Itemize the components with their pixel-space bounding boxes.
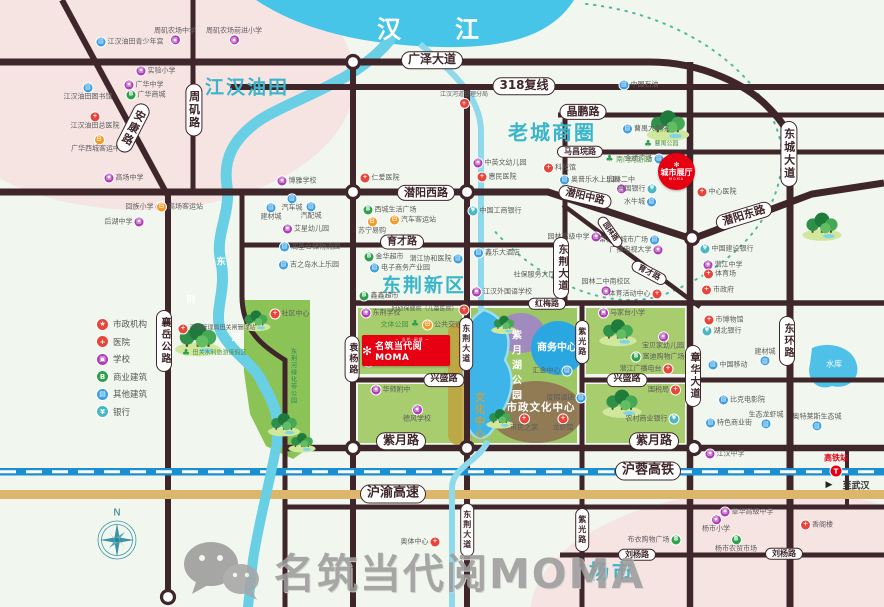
poi-label: 妇幼保健院（儿童医院） <box>391 307 457 313</box>
poi-label: 章华高级中学 <box>732 508 774 515</box>
oth-icon: ▤ <box>813 422 822 431</box>
poi-marker: ▣中英文幼儿园 <box>474 159 527 168</box>
poi-marker: +市民之家 <box>510 414 538 431</box>
sch-icon: ▣ <box>105 174 114 183</box>
road-label: 紫月路 <box>376 432 426 450</box>
oth-icon: ▤ <box>454 255 463 264</box>
road-label: 马昌垸路 <box>557 146 603 158</box>
poi-marker: +龙虾馆 <box>553 414 574 431</box>
legend-item: ¥银行 <box>97 406 147 418</box>
biz-icon: B <box>365 253 374 262</box>
poi-label: 园林二中南校区 <box>582 278 631 285</box>
sch-icon: ▣ <box>283 225 292 234</box>
poi-label: 广华商城 <box>138 91 166 98</box>
biz-icon: B <box>732 535 741 544</box>
compass-north-label: N <box>113 508 120 519</box>
project-logo-box: ✻ ─ 当代·阅境 ─ 名筑当代阅MOMA <box>362 335 450 366</box>
poi-marker: ▣后湖中学 <box>105 218 144 227</box>
poi-label: 艾星幼儿园 <box>294 225 329 232</box>
hosp-icon: + <box>702 286 711 295</box>
poi-marker: ▤江汉油田图书馆 <box>64 83 113 100</box>
poi-marker: ▤汇金中心 <box>533 367 572 376</box>
poi-marker: ¥中国工商银行 <box>469 207 522 216</box>
bank-icon: ¥ <box>703 327 712 336</box>
poi-label: 社区中心 <box>282 310 310 317</box>
poi-label: 河道管理局田关闸管理站 <box>189 326 255 332</box>
oth-icon: ▤ <box>97 389 108 400</box>
sch-icon: ▣ <box>171 36 180 45</box>
poi-label: 汽配城 <box>301 212 322 219</box>
road-label: 兴盛路 <box>423 373 464 387</box>
to-wuhan-label: 至武汉 <box>842 479 869 492</box>
brand-watermark: 名筑当代阅MOMA <box>178 538 645 602</box>
poi-marker: +中心医院 <box>698 188 737 197</box>
bus-icon: ⊟ <box>390 216 399 225</box>
poi-marker: ¥湖北银行 <box>703 327 742 336</box>
poi-label: 鑫乐大酒店 <box>485 249 520 256</box>
poi-label: 体育场 <box>715 270 736 277</box>
poi-label: 田关水利旅游度假区 <box>192 351 246 357</box>
biz-icon: B <box>360 292 369 301</box>
area-label: 东 <box>216 255 225 268</box>
legend-label: 市政机构 <box>113 318 147 330</box>
location-map: 广泽大道318复线晶鹏路马昌垸路潜阳西路潜阳中路潜阳东路育才路园林路育才路红梅路… <box>0 0 884 607</box>
poi-label: 特色商业街 <box>717 419 752 426</box>
poi-label: 市博物馆 <box>716 316 744 323</box>
oth-icon: ▤ <box>97 38 106 47</box>
sch-icon: ▣ <box>278 177 287 186</box>
poi-marker: ▣周矶农场前进小学 <box>206 27 262 44</box>
city-exhibit-badge: ✻ 城市展厅 MOMA <box>658 153 695 190</box>
poi-marker: ▤汽车城 <box>282 194 303 211</box>
oth-icon: ▤ <box>307 202 316 211</box>
poi-marker: +香阁楼 <box>801 521 833 530</box>
poi-marker: +江汉河道管理分局 <box>440 92 488 108</box>
poi-marker: B鑫鑫超市 <box>360 292 399 301</box>
hosp-icon: + <box>544 164 553 173</box>
legend-item: ▣学校 <box>97 353 147 365</box>
legend-label: 学校 <box>113 353 130 365</box>
oth-icon: ▤ <box>719 396 728 405</box>
road-label: 东环路 <box>779 316 795 366</box>
biz-icon: B <box>364 206 373 215</box>
bus-icon: ⊟ <box>423 321 432 330</box>
sch-icon: ▣ <box>230 36 239 45</box>
park-icon: ♣ <box>411 321 420 330</box>
poi-marker: ▣德风学校 <box>403 405 431 422</box>
hosp-icon: + <box>698 188 707 197</box>
sch-icon: ▣ <box>659 332 668 341</box>
poi-marker: ¥中国建设银行 <box>701 245 754 254</box>
bank-icon: ¥ <box>670 415 679 424</box>
poi-label: 吉之岛水上乐园 <box>290 261 339 268</box>
poi-marker: ▤中国移动 <box>709 361 748 370</box>
poi-marker: ▤润基仓储物流园 <box>280 243 340 252</box>
poi-label: 马家台小学 <box>610 309 645 316</box>
oth-icon: ▤ <box>563 367 572 376</box>
poi-marker: +市政府 <box>702 286 734 295</box>
sch-icon: ▣ <box>135 218 144 227</box>
poi-marker: ▤生态龙虾城 <box>749 411 784 428</box>
sch-icon: ▣ <box>137 67 146 76</box>
poi-label: 宝贝家幼儿园 <box>642 342 684 349</box>
project-logo-title: 名筑当代阅MOMA <box>375 342 450 364</box>
hosp-icon: + <box>705 316 714 325</box>
area-label: 紫月湖公园 <box>508 330 523 405</box>
sch-icon: ▣ <box>474 159 483 168</box>
oth-icon: ▤ <box>706 419 715 428</box>
legend-label: 银行 <box>113 406 130 418</box>
bank-icon: ¥ <box>701 245 710 254</box>
hosp-icon: + <box>704 270 713 279</box>
poi-label: 江汉河道管理分局 <box>440 92 488 98</box>
biz-icon: B <box>127 91 136 100</box>
poi-label: 回族小学 <box>126 203 154 210</box>
poi-label: 潜江协和医院 <box>410 255 452 262</box>
park-icon: ♣ <box>643 141 652 150</box>
oth-icon: ▤ <box>650 236 659 245</box>
poi-marker: ▤中国石油 <box>620 81 659 90</box>
poi-marker: ▣实验小学 <box>137 67 176 76</box>
rail-station-label: 高铁站 <box>824 453 848 464</box>
poi-label: 电子商务产业园 <box>381 264 430 271</box>
poi-marker: ▤曹禺大剧院 <box>623 125 669 134</box>
poi-marker: +体育活动中心 <box>609 290 662 299</box>
poi-marker: ▣艾星幼儿园 <box>283 225 329 234</box>
oth-icon: ▤ <box>560 176 569 185</box>
gov-icon: ★ <box>97 319 108 330</box>
road-label: 晶鹏路 <box>560 104 607 120</box>
poi-marker: +潜江广播电台 <box>620 365 673 374</box>
poi-label: 高场中学 <box>116 174 144 181</box>
poi-marker: ¥中国银行 <box>618 185 657 194</box>
poi-marker: ♣南门河游园 <box>605 156 651 165</box>
to-wuhan-arrow-icon: ▶ <box>826 480 833 490</box>
poi-label: 湖北银行 <box>714 327 742 334</box>
poi-marker: B富迪购物广场 <box>632 353 685 362</box>
poi-marker: B金华超市 <box>365 253 404 262</box>
poi-label: 仁爱医院 <box>372 174 400 181</box>
sch-icon: ▣ <box>362 309 371 318</box>
oth-icon: ▤ <box>267 203 276 212</box>
road-label: 潜阳西路 <box>397 185 455 201</box>
poi-label: 中国工商银行 <box>480 207 522 214</box>
legend-label: 商业建筑 <box>113 371 147 383</box>
poi-label: 建材城 <box>755 348 776 355</box>
area-label: 东荆河绿化带公园 <box>289 348 298 404</box>
hosp-icon: + <box>460 306 469 315</box>
watermark-text: 名筑当代阅MOMA <box>274 540 645 600</box>
oth-icon: ▤ <box>620 81 629 90</box>
poi-label: 水牛城 <box>624 198 645 205</box>
road-label: 紫月路 <box>629 432 679 450</box>
compass-icon <box>98 521 136 559</box>
hosp-icon: + <box>459 99 468 108</box>
poi-label: 江汉油田青少年宫 <box>108 38 164 45</box>
oth-icon: ▤ <box>762 420 771 429</box>
poi-marker: ♣文体公园 <box>381 321 420 330</box>
poi-marker: ▣宝贝家幼儿园 <box>642 332 684 349</box>
hosp-icon: + <box>801 521 810 530</box>
poi-marker: ▣潜江中学 <box>704 261 743 270</box>
poi-label: 农村商业银行 <box>626 415 668 422</box>
area-label: 荆 <box>186 293 195 306</box>
poi-label: 实验小学 <box>148 67 176 74</box>
poi-label: 潜江广播电台 <box>620 365 662 372</box>
road-label: 广泽大道 <box>401 51 463 69</box>
poi-marker: B杨市农贸市场 <box>715 535 757 552</box>
road-label: 周矶路 <box>185 84 202 137</box>
poi-label: 金华超市 <box>376 253 404 260</box>
poi-marker: ♣曹禺公园 <box>643 141 678 150</box>
expressway <box>0 490 884 499</box>
poi-marker: +体育场 <box>704 270 736 279</box>
sch-icon: ▣ <box>372 386 381 395</box>
poi-label: 奥特莱斯生态城 <box>793 413 842 420</box>
legend-item: ▤其他建筑 <box>97 388 147 400</box>
poi-label: 国税局 <box>648 386 669 393</box>
rail-line <box>0 468 884 476</box>
poi-label: 香阁楼 <box>812 521 833 528</box>
sch-icon: ▣ <box>413 405 422 414</box>
wechat-icon <box>178 538 264 602</box>
park-icon: ♣ <box>605 156 614 165</box>
poi-marker: ▤潜江协和医院 <box>410 255 463 264</box>
road-label: 沪蓉高铁 <box>615 462 681 481</box>
legend-item: B商业建筑 <box>97 371 147 383</box>
area-label: 文化中心 <box>471 392 486 440</box>
poi-label: 广华中学 <box>136 81 164 88</box>
hosp-icon: + <box>559 414 568 423</box>
area-label: 老城商圈 <box>508 117 596 146</box>
poi-marker: ▤比克电影院 <box>719 396 765 405</box>
road-label: 章华大道 <box>685 345 701 407</box>
oth-icon: ▤ <box>279 261 288 270</box>
park-icon: ♣ <box>181 350 190 359</box>
road-label: 318复线 <box>492 77 555 95</box>
poi-marker: ▣江汉外国语学校 <box>472 288 532 297</box>
poi-label: 江汉外国语学校 <box>483 288 532 295</box>
oth-icon: ▤ <box>577 394 586 403</box>
poi-marker: ▣马家台小学 <box>599 309 645 318</box>
oth-icon: ▤ <box>623 125 632 134</box>
poi-label: 社保服务大厅 <box>514 271 556 278</box>
poi-marker: +社区中心 <box>271 310 310 319</box>
poi-label: 高场客运站 <box>168 203 203 210</box>
poi-marker: ▤建材城 <box>261 203 282 220</box>
map-legend: ★市政机构+医院▣学校B商业建筑▤其他建筑¥银行 <box>97 318 147 418</box>
poi-marker: ▤度假酒店 <box>547 394 586 403</box>
oth-icon: ▤ <box>761 357 770 366</box>
road-label: 育才路 <box>380 235 424 250</box>
hosp-icon: + <box>178 325 187 334</box>
poi-label: 中国石油 <box>631 81 659 88</box>
poi-marker: ▤江汉油田青少年宫 <box>97 38 164 47</box>
legend-item: ★市政机构 <box>97 318 147 330</box>
sch-icon: ▣ <box>472 288 481 297</box>
poi-marker: ▤特色商业街 <box>706 419 752 428</box>
poi-label: 比克电影院 <box>730 396 765 403</box>
hosp-icon: + <box>653 290 662 299</box>
poi-label: 龙虾馆 <box>553 424 574 431</box>
poi-label: 中国移动 <box>720 361 748 368</box>
area-label: 商务中心 <box>537 339 577 354</box>
poi-marker: ¥农村商业银行 <box>626 415 679 424</box>
oth-icon: ▤ <box>474 249 483 258</box>
poi-label: 江汉油田图书馆 <box>64 93 113 100</box>
hosp-icon: + <box>671 386 680 395</box>
poi-marker: ▤吉之岛水上乐园 <box>279 261 339 270</box>
poi-marker: ▣华师附中 <box>372 386 411 395</box>
poi-label: 华师附中 <box>383 386 411 393</box>
sch-icon: ▣ <box>706 450 715 459</box>
poi-label: 后湖中学 <box>105 218 133 225</box>
poi-marker: ▤电子商务产业园 <box>370 264 430 273</box>
biz-icon: B <box>97 371 108 382</box>
poi-label: 曹禺公园 <box>654 142 678 148</box>
oth-icon: ▤ <box>647 198 656 207</box>
area-label: 江汉油田 <box>205 73 289 100</box>
exhibit-subtitle: MOMA <box>669 178 684 182</box>
poi-label: 苏宁易购 <box>358 227 386 234</box>
hosp-icon: + <box>520 414 529 423</box>
poi-label: 市政府 <box>713 286 734 293</box>
oth-icon: ▤ <box>280 243 289 252</box>
poi-label: 惠民医院 <box>489 173 517 180</box>
poi-marker: +妇幼保健院（儿童医院） <box>391 306 468 315</box>
road-label: 兴盛路 <box>606 373 647 387</box>
poi-marker: ♣田关水利旅游度假区 <box>181 350 246 359</box>
oth-icon: ▤ <box>288 194 297 203</box>
road-label: 东荆大道 <box>459 317 473 371</box>
poi-marker: ▤鑫乐大酒店 <box>474 249 520 258</box>
poi-label: 中英文幼儿园 <box>485 159 527 166</box>
poi-label: 周矶农场前进小学 <box>206 27 262 34</box>
road-label: 袁杨路 <box>345 336 360 383</box>
legend-item: +医院 <box>97 336 147 348</box>
poi-label: 杨市农贸市场 <box>715 545 757 552</box>
poi-marker: +江汉油田总医院 <box>71 112 120 129</box>
poi-label: 文体公园 <box>381 321 409 328</box>
poi-marker: +科技馆 <box>544 164 576 173</box>
poi-label: 周矶农场中学 <box>154 27 196 34</box>
poi-label: 南门河游园 <box>616 156 651 163</box>
poi-marker: ▣博雅学校 <box>278 177 317 186</box>
biz-icon: B <box>672 536 681 545</box>
sch-icon: ▣ <box>704 261 713 270</box>
area-label: 汉江 <box>323 10 533 45</box>
area-label: 水库 <box>826 359 842 370</box>
poi-label: 汽车城 <box>282 204 303 211</box>
poi-label: 度假酒店 <box>547 394 575 401</box>
poi-marker: B广华商城 <box>127 91 166 100</box>
poi-marker: ▤建材城 <box>755 348 776 365</box>
poi-label: 德风学校 <box>403 415 431 422</box>
poi-marker: ▣杨市小学 <box>702 515 730 532</box>
poi-marker: +国税局 <box>648 386 680 395</box>
road-label: 紫光路 <box>575 320 589 364</box>
poi-marker: ⊟高场客运站 <box>157 203 203 212</box>
road-label: 东城大道 <box>780 121 797 187</box>
rail-station-icon: T <box>831 466 842 477</box>
poi-label: 中国银行 <box>618 185 646 192</box>
oth-icon: ▤ <box>84 83 93 92</box>
poi-label: 体育活动中心 <box>609 290 651 297</box>
bus-icon: ⊟ <box>157 203 166 212</box>
poi-label: 江汉油田总医院 <box>71 122 120 129</box>
poi-marker: ▣高场中学 <box>105 174 144 183</box>
hosp-icon: + <box>664 365 673 374</box>
hosp-icon: + <box>271 310 280 319</box>
poi-label: 中心医院 <box>709 188 737 195</box>
poi-marker: ▣江汉中学 <box>706 450 745 459</box>
poi-marker: ▤水牛城 <box>624 198 656 207</box>
poi-label: 润基仓储物流园 <box>291 243 340 250</box>
poi-label: 园林二中 <box>607 176 635 183</box>
poi-marker: +河道管理局田关闸管理站 <box>178 325 255 334</box>
poi-label: 东荆学校 <box>373 309 401 316</box>
poi-marker: +惠民医院 <box>478 173 517 182</box>
legend-label: 医院 <box>113 336 130 348</box>
poi-label: 中国建设银行 <box>712 245 754 252</box>
poi-label: 西城生活广场 <box>375 206 417 213</box>
poi-label: 博雅学校 <box>289 177 317 184</box>
hosp-icon: + <box>97 336 108 347</box>
road-label: 刘杨路 <box>765 548 803 560</box>
sch-icon: ▣ <box>97 354 108 365</box>
poi-label: 杨市小学 <box>702 525 730 532</box>
hosp-icon: + <box>361 174 370 183</box>
hosp-icon: + <box>91 112 100 121</box>
road-label: 襄岳公路 <box>156 310 172 372</box>
poi-marker: B西城生活广场 <box>364 206 417 215</box>
poi-marker: ▣广华中学 <box>125 81 164 90</box>
project-tree-icon: ✻ <box>362 345 372 357</box>
bank-icon: ¥ <box>97 406 108 417</box>
legend-label: 其他建筑 <box>113 388 147 400</box>
road-label: 沪渝高速 <box>360 485 426 504</box>
sch-icon: ▣ <box>712 515 721 524</box>
bank-icon: ¥ <box>469 207 478 216</box>
poi-label: 生态龙虾城 <box>749 411 784 418</box>
oth-icon: ▤ <box>370 264 379 273</box>
poi-marker: ⊟汽车客运站 <box>390 216 436 225</box>
poi-label: 潜江中学 <box>715 261 743 268</box>
oth-icon: ▤ <box>709 361 718 370</box>
poi-marker: +仁爱医院 <box>361 174 400 183</box>
bank-icon: ¥ <box>648 185 657 194</box>
bus-icon: ⊟ <box>368 217 377 226</box>
poi-label: 江汉中学 <box>717 450 745 457</box>
poi-label: 汇金中心 <box>533 367 561 374</box>
poi-label: 富迪购物广场 <box>643 353 685 360</box>
poi-marker: ▤汽配城 <box>301 202 322 219</box>
sch-icon: ▣ <box>654 246 663 255</box>
hosp-icon: + <box>478 173 487 182</box>
sch-icon: ▣ <box>125 81 134 90</box>
poi-marker: ▤奥特莱斯生态城 <box>793 413 842 430</box>
road-label: 东荆大道 <box>553 237 569 299</box>
biz-icon: B <box>632 353 641 362</box>
bus-icon: ⊟ <box>95 135 104 144</box>
poi-label: 市民之家 <box>510 424 538 431</box>
poi-label: 汽车客运站 <box>401 216 436 223</box>
poi-label: 鑫鑫超市 <box>371 292 399 299</box>
poi-marker: ⊟苏宁易购 <box>358 217 386 234</box>
poi-marker: +市博物馆 <box>705 316 744 325</box>
poi-label: 曹禺大剧院 <box>634 125 669 132</box>
poi-label: 建材城 <box>261 213 282 220</box>
